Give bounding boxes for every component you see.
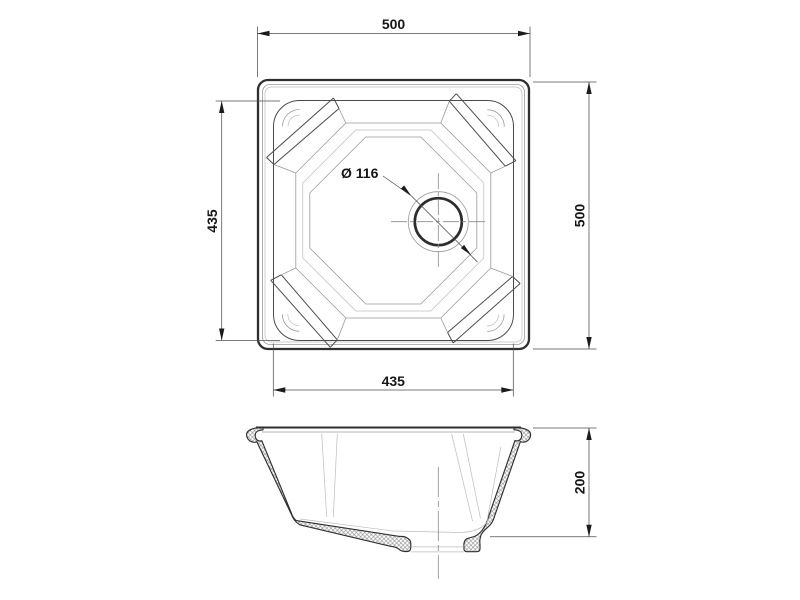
dimension-bowl-width: 435 (273, 344, 513, 397)
section-interior-edges (300, 434, 501, 533)
drain-opening-edges (411, 547, 464, 552)
corner-detail-bottom-left (271, 268, 346, 347)
drain-dim-arrow-upper (401, 185, 411, 195)
height-label: 200 (572, 471, 588, 495)
dimension-bowl-depth: 435 (204, 101, 280, 341)
overall-depth-label: 500 (572, 204, 588, 228)
section-left-wall-cut (247, 428, 411, 552)
rim-inner-line-1 (263, 85, 525, 345)
sink-technical-drawing: Ø 116 500 500 435 435 (0, 0, 800, 600)
corner-detail-top-right (441, 94, 516, 173)
overall-width-label: 500 (382, 16, 406, 32)
corner-detail-top-left (267, 98, 346, 173)
dimension-overall-depth: 500 (533, 82, 597, 349)
corner-detail-bottom-right (441, 268, 520, 343)
dimension-overall-width: 500 (258, 16, 531, 77)
top-view: Ø 116 (258, 80, 529, 349)
bowl-width-label: 435 (382, 373, 406, 389)
drain-diameter-label: Ø 116 (341, 165, 379, 181)
section-view (247, 428, 531, 580)
drawing-canvas: Ø 116 500 500 435 435 (0, 0, 800, 600)
sink-outer-edge (258, 80, 529, 349)
bowl-depth-label: 435 (204, 209, 220, 233)
section-right-wall-cut (464, 428, 531, 552)
